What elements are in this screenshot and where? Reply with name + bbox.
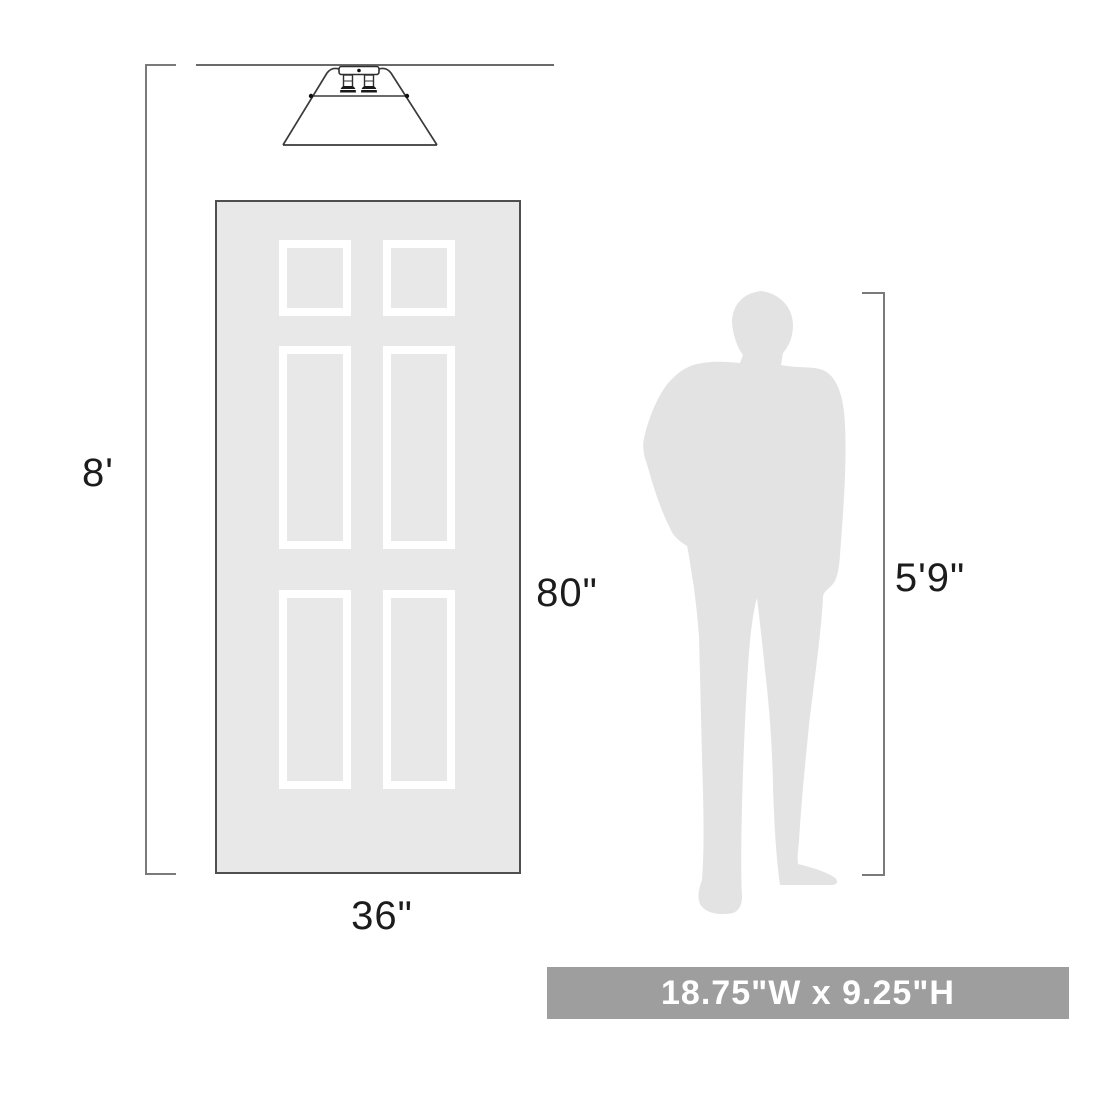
door-panel xyxy=(279,346,351,549)
dimension-line-vertical xyxy=(145,64,147,875)
door-panel xyxy=(383,590,455,789)
dimension-tick-bottom xyxy=(145,873,176,875)
door-panel xyxy=(383,346,455,549)
door-drawing xyxy=(215,200,521,874)
product-size-text: 18.75"W x 9.25"H xyxy=(661,974,955,1013)
man-silhouette xyxy=(643,285,848,917)
ceiling-height-label: 8' xyxy=(58,452,138,494)
door-height-label: 80" xyxy=(522,572,612,614)
door-panel xyxy=(279,240,351,316)
door-panel xyxy=(383,240,455,316)
product-size-banner: 18.75"W x 9.25"H xyxy=(547,967,1069,1019)
flush-mount-light-icon xyxy=(270,55,450,155)
scale-diagram-canvas: 8' 80" 36" xyxy=(0,0,1096,1096)
dimension-tick-top xyxy=(145,64,176,66)
person-height-label: 5'9" xyxy=(885,557,975,599)
door-width-label: 36" xyxy=(337,895,427,937)
dimension-tick-bottom xyxy=(862,874,885,876)
dimension-tick-top xyxy=(862,292,885,294)
door-panel xyxy=(279,590,351,789)
